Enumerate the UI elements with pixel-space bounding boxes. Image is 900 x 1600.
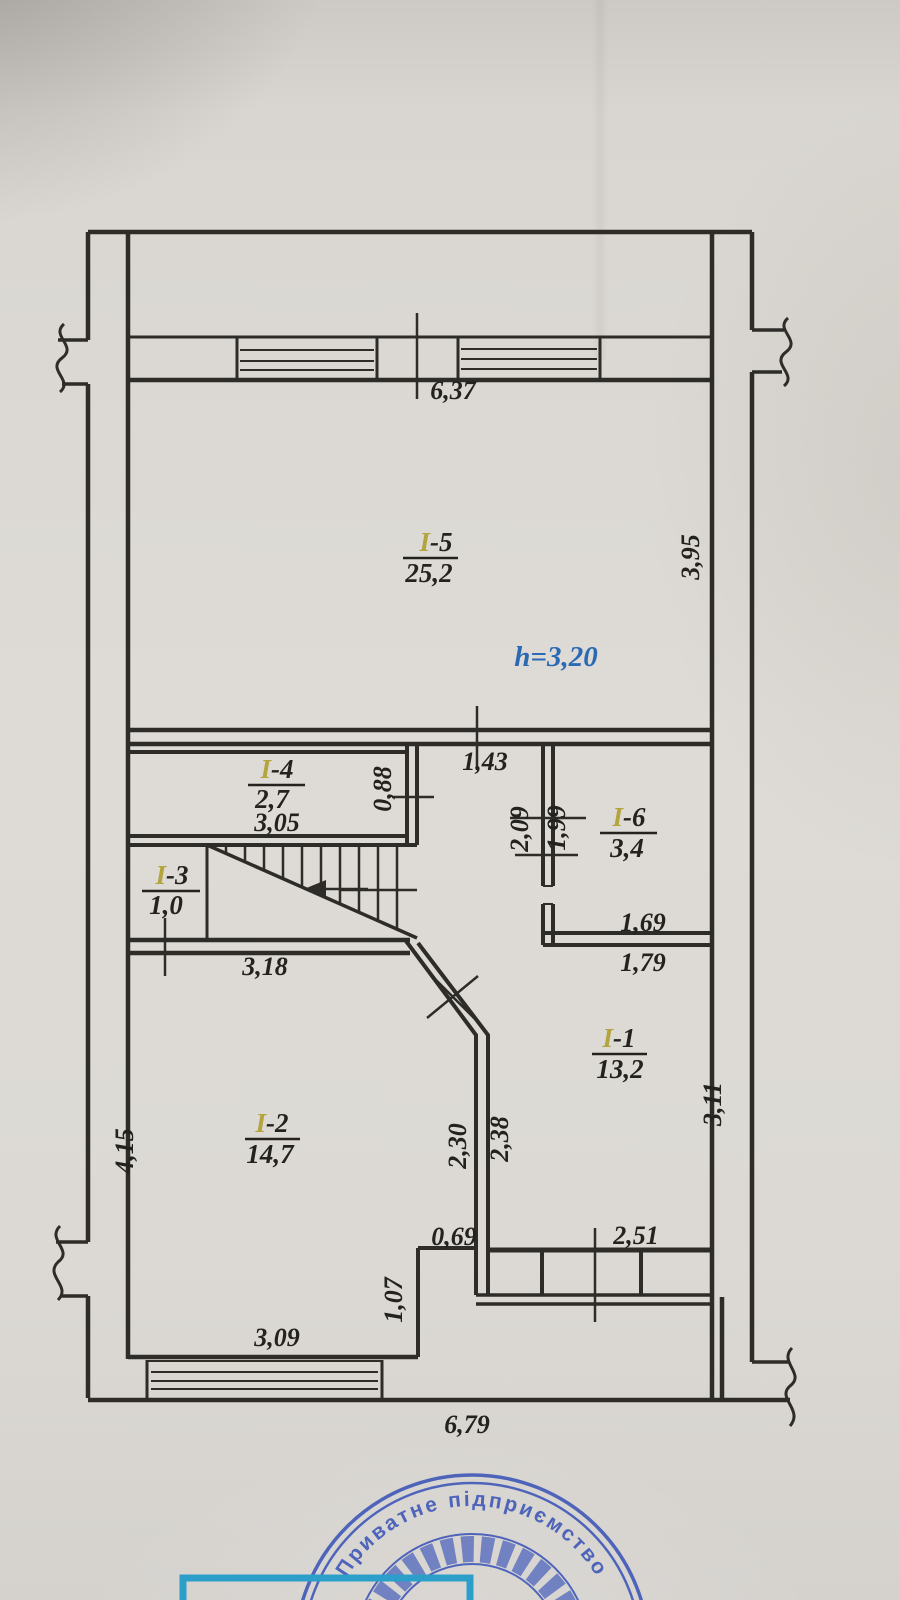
- photographed-floor-plan-page: 6,37 3,95 1,43 3,05 0,88 2,09 1,99 1,69 …: [0, 0, 900, 1600]
- dim-r6-left-a: 2,09: [505, 806, 534, 853]
- entry-door-jambs: [542, 1250, 641, 1295]
- room-1-5-area: 25,2: [404, 558, 452, 588]
- dim-r2-left: 4,15: [110, 1128, 139, 1175]
- room-1-3-number: І-3: [154, 860, 188, 890]
- top-wall-window-band: [128, 337, 712, 380]
- room-1-6-area: 3,4: [609, 833, 644, 863]
- staircase: [207, 845, 417, 940]
- room-1-6-number: І-6: [611, 802, 646, 832]
- room-label-1-5: І-5 25,2: [403, 527, 458, 588]
- dim-bottom-width: 6,79: [444, 1410, 490, 1439]
- stair-arrow-head: [304, 880, 326, 898]
- dim-r6-width: 1,69: [620, 908, 666, 937]
- room-1-3-num: -3: [166, 860, 189, 890]
- room-1-4-number: І-4: [259, 754, 293, 784]
- room-1-4-num: -4: [271, 754, 294, 784]
- room-1-1-area: 13,2: [596, 1054, 643, 1084]
- room-1-2-number: І-2: [254, 1108, 288, 1138]
- ceiling-height-note: h=3,20: [514, 641, 597, 673]
- dim-r2-niche-height: 1,07: [379, 1276, 408, 1323]
- room-1-1-num: -1: [613, 1023, 636, 1053]
- dim-r6-left-b: 1,99: [542, 805, 571, 851]
- dim-r1-right: 3,11: [698, 1082, 727, 1127]
- room-1-3-area: 1,0: [149, 890, 183, 920]
- dim-r5-depth: 3,95: [676, 534, 705, 581]
- room-1-2-area: 14,7: [246, 1139, 295, 1169]
- window-glazing-lines: [240, 349, 597, 370]
- middle-wall: [128, 730, 712, 744]
- dim-passage: 1,43: [462, 747, 508, 776]
- room-label-1-1: І-1 13,2: [592, 1023, 647, 1084]
- bottom-window-frame: [147, 1360, 382, 1399]
- floor-plan-svg: 6,37 3,95 1,43 3,05 0,88 2,09 1,99 1,69 …: [0, 0, 900, 1600]
- dim-r4-depth: 0,88: [368, 766, 397, 812]
- dim-r2-top: 3,18: [241, 952, 288, 981]
- room-1-4-area: 2,7: [254, 784, 290, 814]
- room-1-5-number: І-5: [418, 527, 452, 557]
- room-1-2-bottom-wall: [128, 1357, 418, 1399]
- room-label-1-4: І-4 2,7: [248, 754, 305, 814]
- room-1-6-num: -6: [623, 802, 646, 832]
- teal-annotation-box: [183, 1578, 470, 1600]
- dim-niche-width: 0,69: [431, 1222, 477, 1251]
- dim-r1-wall-a: 2,30: [443, 1123, 472, 1170]
- dim-r6-width-out: 1,79: [620, 948, 666, 977]
- room-label-1-3: І-3 1,0: [142, 860, 200, 920]
- dim-entry-width: 2,51: [612, 1221, 659, 1250]
- outer-walls: [56, 232, 790, 1400]
- room-1-5-num: -5: [430, 527, 453, 557]
- bottom-window-glazing: [147, 1361, 382, 1389]
- room-label-1-2: І-2 14,7: [245, 1108, 300, 1169]
- room-label-1-6: І-6 3,4: [600, 802, 657, 863]
- dim-top-width: 6,37: [430, 376, 477, 405]
- dim-r2-bottom: 3,09: [253, 1323, 300, 1352]
- room-1-2-num: -2: [266, 1108, 289, 1138]
- room-1-1-number: І-1: [601, 1023, 635, 1053]
- dim-r1-wall-b: 2,38: [485, 1116, 514, 1163]
- room-1-2-niche: [418, 1248, 476, 1357]
